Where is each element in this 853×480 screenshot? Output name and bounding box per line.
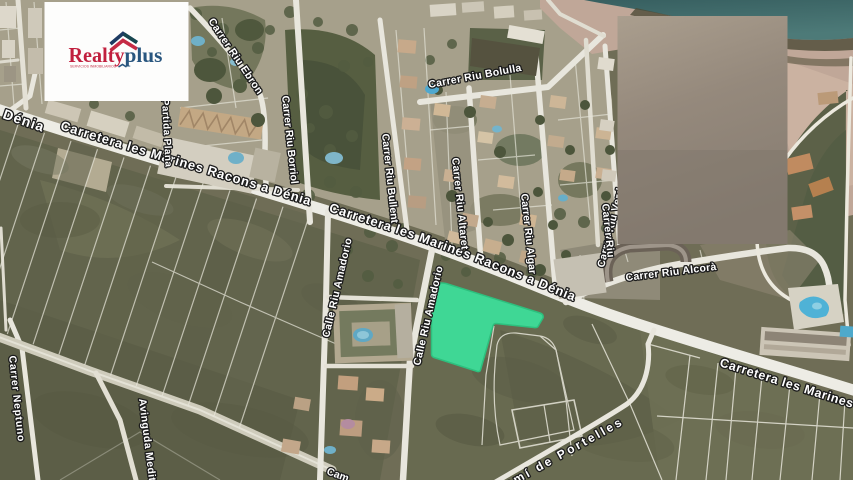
svg-text:plus: plus (125, 43, 163, 67)
svg-text:SERVICIOS INMOBILIARIOS: SERVICIOS INMOBILIARIOS (70, 65, 116, 69)
svg-text:Realty: Realty (69, 43, 125, 67)
